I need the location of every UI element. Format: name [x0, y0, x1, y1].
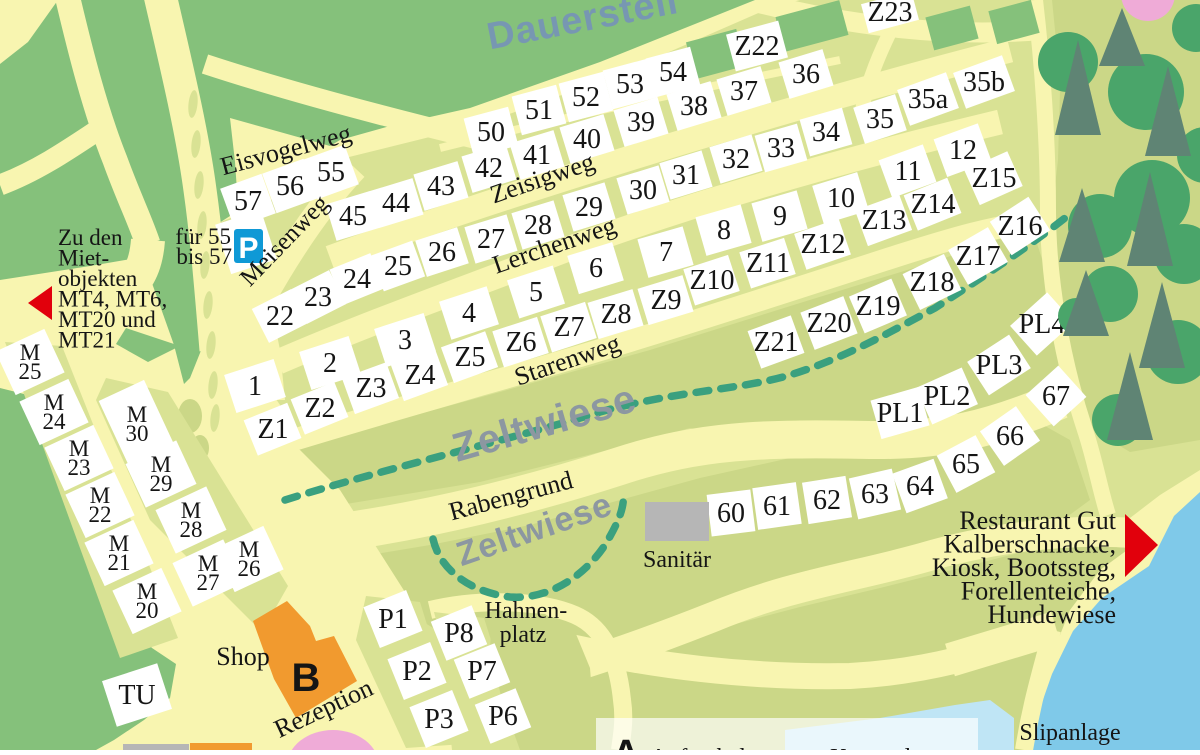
svg-text:62: 62 [813, 485, 841, 516]
svg-text:24: 24 [343, 264, 371, 295]
svg-text:Slipanlage: Slipanlage [1019, 720, 1120, 746]
svg-text:45: 45 [339, 201, 367, 232]
svg-text:M22: M22 [89, 483, 112, 527]
svg-text:TU: TU [118, 680, 155, 711]
svg-text:34: 34 [812, 117, 840, 148]
svg-text:67: 67 [1042, 381, 1070, 412]
svg-text:61: 61 [763, 491, 791, 522]
svg-text:M28: M28 [180, 498, 203, 542]
svg-text:PL2: PL2 [924, 381, 971, 412]
svg-text:PL1: PL1 [877, 398, 924, 429]
svg-text:54: 54 [659, 57, 687, 88]
svg-text:32: 32 [722, 144, 750, 175]
svg-text:P6: P6 [488, 701, 518, 732]
svg-text:P1: P1 [378, 604, 408, 635]
svg-text:52: 52 [572, 82, 600, 113]
svg-text:Z9: Z9 [650, 285, 681, 316]
svg-text:Z1: Z1 [257, 414, 288, 445]
svg-text:Aufenthaltsraum: Aufenthaltsraum [650, 745, 812, 750]
svg-text:7: 7 [659, 237, 673, 268]
svg-text:25: 25 [384, 251, 412, 282]
svg-text:Z18: Z18 [909, 267, 954, 298]
svg-text:Z15: Z15 [971, 163, 1016, 194]
svg-text:Z6: Z6 [505, 327, 536, 358]
svg-text:22: 22 [266, 301, 294, 332]
svg-text:56: 56 [276, 171, 304, 202]
svg-text:35: 35 [866, 104, 894, 135]
svg-text:Z7: Z7 [553, 312, 584, 343]
svg-text:Z22: Z22 [734, 31, 779, 62]
svg-text:51: 51 [525, 95, 553, 126]
svg-text:60: 60 [717, 498, 745, 529]
svg-text:53: 53 [616, 69, 644, 100]
svg-text:65: 65 [952, 449, 980, 480]
svg-text:23: 23 [304, 282, 332, 313]
svg-text:8: 8 [717, 215, 731, 246]
svg-text:35a: 35a [908, 84, 949, 115]
svg-text:26: 26 [428, 237, 456, 268]
svg-text:43: 43 [427, 171, 455, 202]
svg-text:37: 37 [730, 76, 758, 107]
svg-text:31: 31 [672, 160, 700, 191]
svg-text:Z19: Z19 [855, 291, 900, 322]
svg-text:39: 39 [627, 107, 655, 138]
svg-text:Z21: Z21 [753, 327, 798, 358]
svg-text:Z10: Z10 [689, 265, 734, 296]
svg-text:38: 38 [680, 91, 708, 122]
svg-text:P8: P8 [444, 618, 474, 649]
svg-text:12: 12 [949, 135, 977, 166]
svg-text:5: 5 [529, 277, 543, 308]
svg-text:30: 30 [629, 175, 657, 206]
svg-text:44: 44 [382, 188, 410, 219]
svg-text:P3: P3 [424, 704, 454, 735]
svg-text:Z14: Z14 [910, 189, 955, 220]
svg-text:36: 36 [792, 59, 820, 90]
svg-text:M24: M24 [43, 390, 67, 434]
svg-text:bis 57: bis 57 [176, 244, 232, 269]
svg-text:Hahnen-: Hahnen- [485, 598, 568, 624]
svg-text:Z8: Z8 [600, 299, 631, 330]
svg-text:P7: P7 [467, 656, 497, 687]
svg-text:B: B [292, 656, 321, 700]
svg-text:P2: P2 [402, 656, 432, 687]
svg-text:9: 9 [773, 201, 787, 232]
svg-text:57: 57 [234, 186, 262, 217]
svg-text:Kanuanleger: Kanuanleger [830, 745, 953, 750]
svg-text:63: 63 [861, 479, 889, 510]
svg-text:M26: M26 [238, 537, 261, 581]
svg-text:11: 11 [895, 156, 922, 187]
svg-text:Z13: Z13 [861, 205, 906, 236]
svg-text:M27: M27 [197, 551, 220, 595]
svg-text:Z12: Z12 [800, 229, 845, 260]
svg-text:10: 10 [827, 183, 855, 214]
svg-text:33: 33 [767, 133, 795, 164]
svg-text:M21: M21 [108, 531, 131, 575]
svg-text:Z3: Z3 [355, 373, 386, 404]
svg-text:4: 4 [462, 298, 476, 329]
svg-text:Z23: Z23 [867, 0, 912, 28]
svg-text:Z20: Z20 [806, 308, 851, 339]
svg-text:1: 1 [248, 371, 262, 402]
svg-text:platz: platz [500, 622, 547, 648]
svg-text:3: 3 [398, 325, 412, 356]
svg-text:A: A [612, 733, 639, 750]
svg-text:Z17: Z17 [955, 241, 1000, 272]
svg-text:2: 2 [323, 348, 337, 379]
svg-text:Hundewiese: Hundewiese [987, 600, 1116, 629]
svg-text:Z11: Z11 [746, 248, 790, 279]
svg-text:64: 64 [906, 471, 934, 502]
svg-text:Z16: Z16 [997, 211, 1042, 242]
svg-text:MT21: MT21 [58, 328, 116, 353]
svg-text:PL3: PL3 [976, 350, 1023, 381]
svg-text:M29: M29 [150, 452, 173, 496]
svg-text:50: 50 [477, 117, 505, 148]
svg-text:Z2: Z2 [304, 393, 335, 424]
svg-text:Shop: Shop [216, 642, 269, 671]
svg-text:Z5: Z5 [454, 342, 485, 373]
svg-text:6: 6 [589, 253, 603, 284]
svg-text:Z4: Z4 [404, 360, 435, 391]
svg-text:M20: M20 [136, 579, 159, 623]
svg-text:M30: M30 [126, 402, 149, 446]
svg-text:M25: M25 [19, 340, 42, 384]
svg-text:66: 66 [996, 421, 1024, 452]
svg-text:M23: M23 [68, 436, 91, 480]
svg-text:35b: 35b [963, 67, 1005, 98]
svg-text:Sanitär: Sanitär [643, 547, 711, 573]
svg-text:55: 55 [317, 157, 345, 188]
